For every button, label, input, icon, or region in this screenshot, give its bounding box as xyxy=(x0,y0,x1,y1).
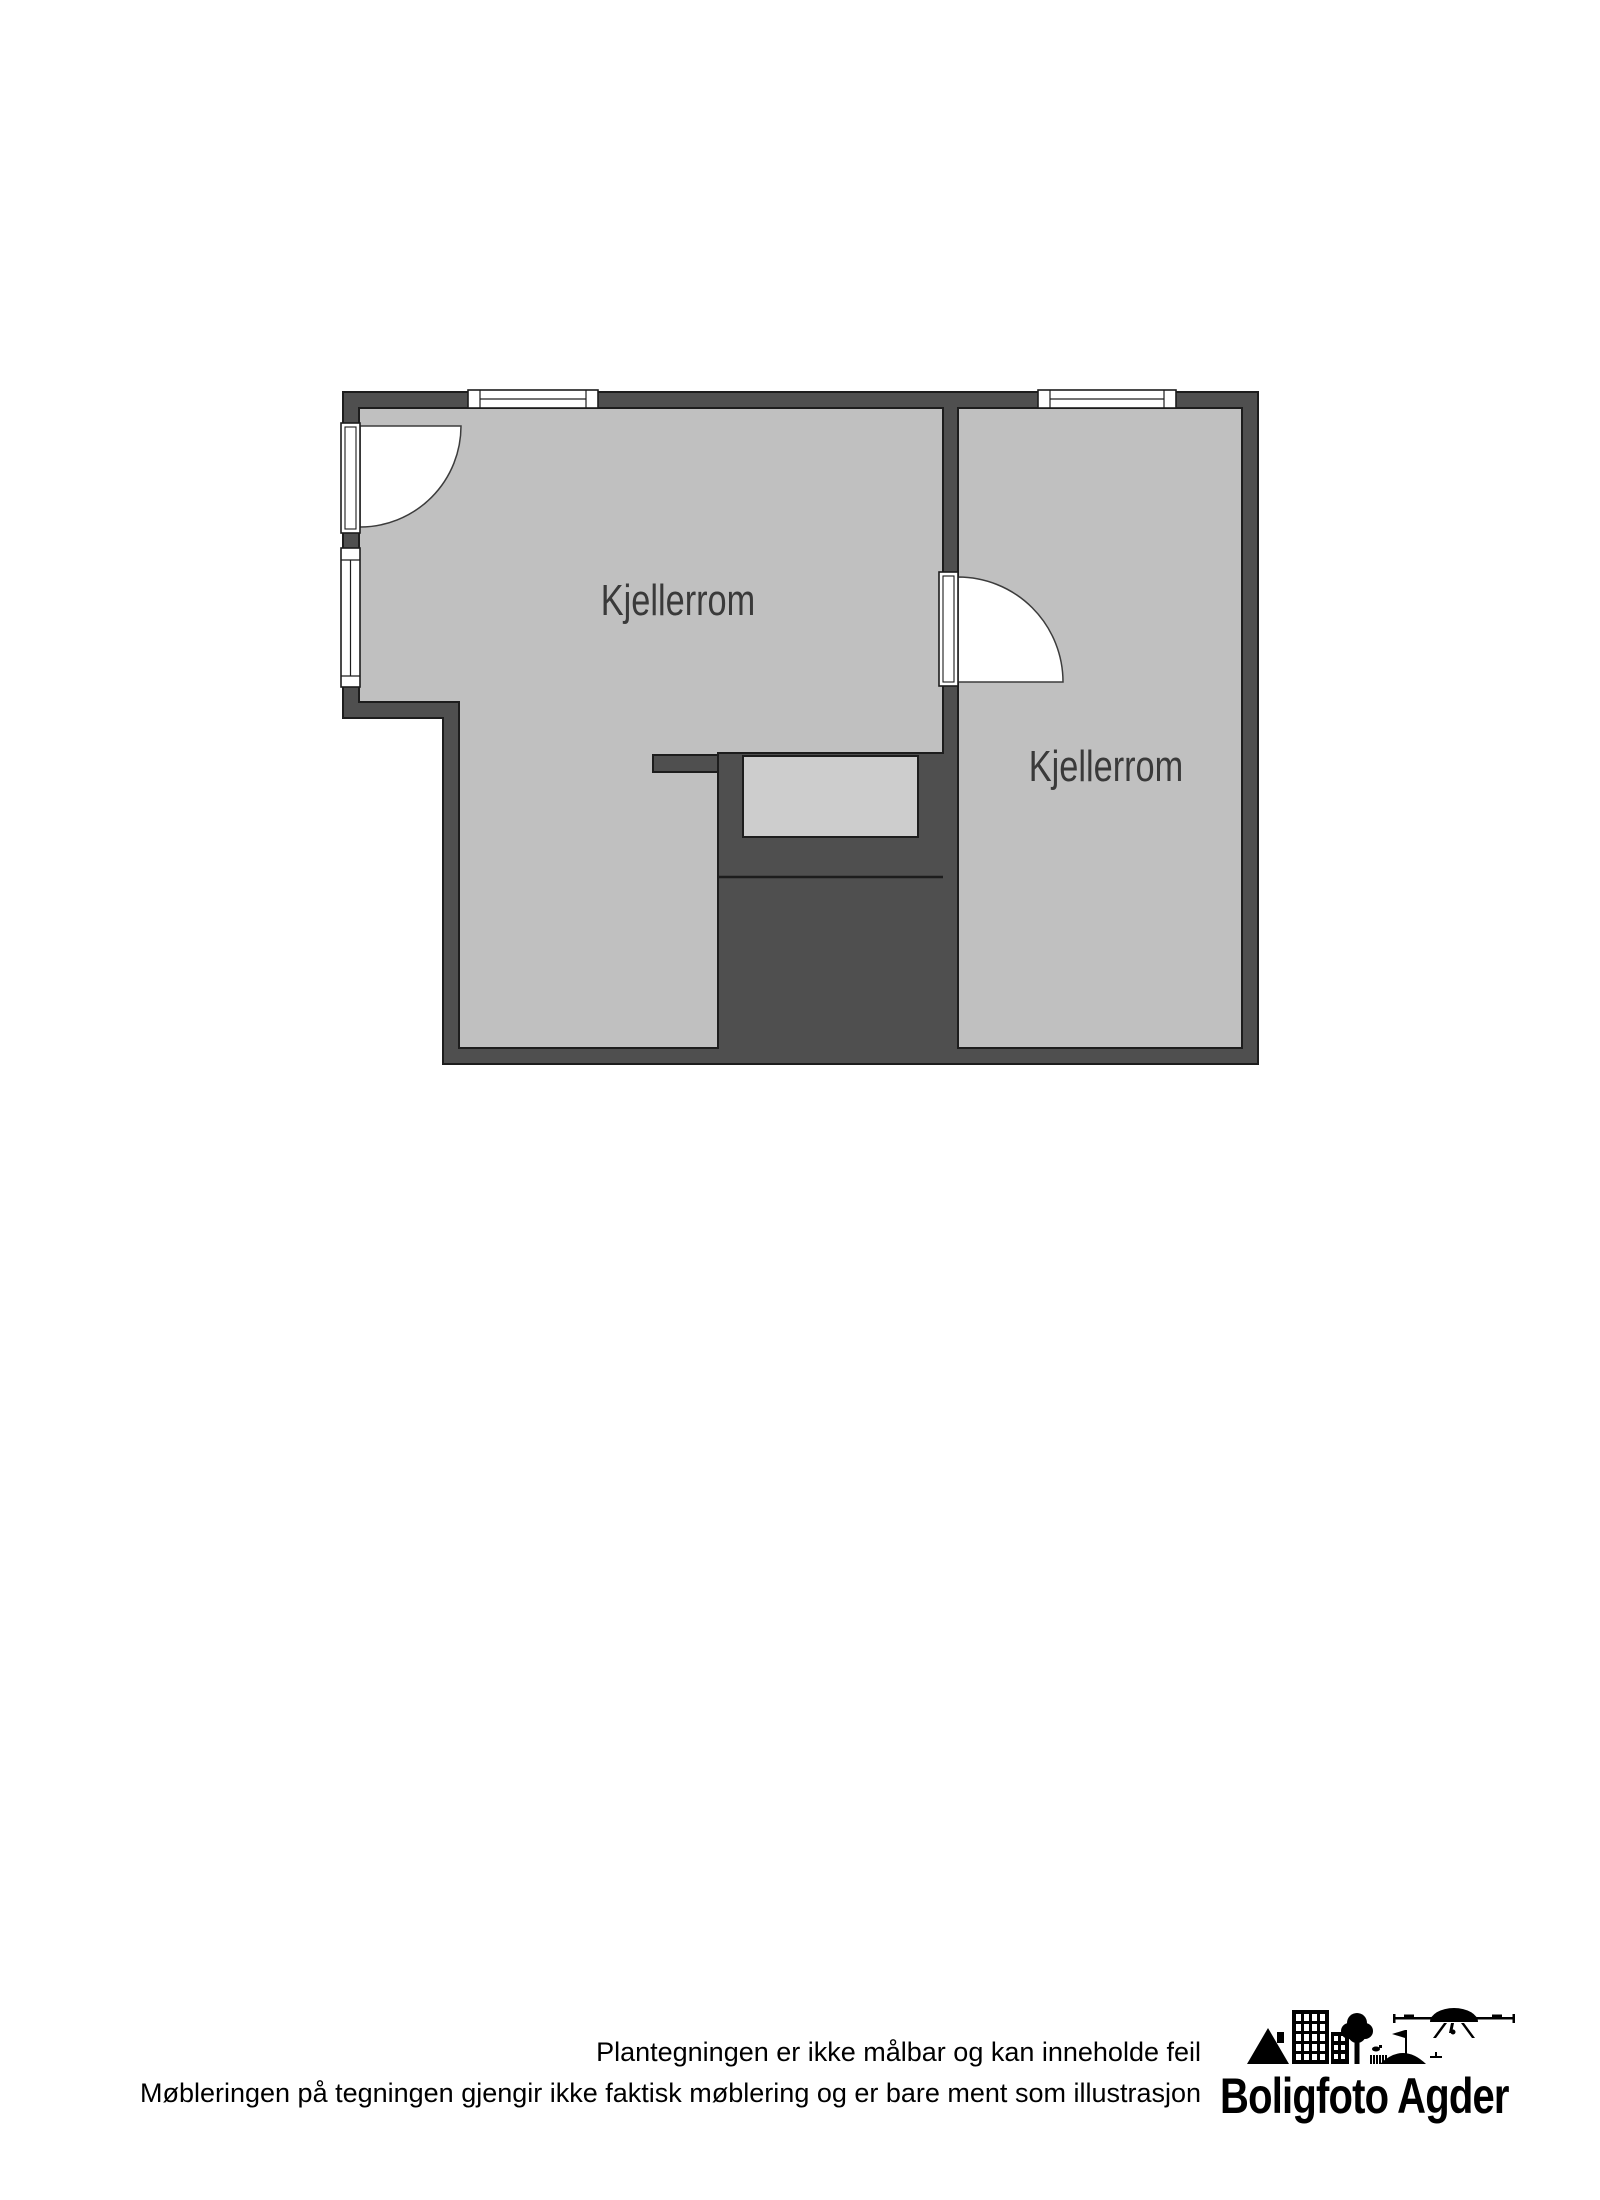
bird-icon xyxy=(1372,2047,1380,2052)
room-floor-right xyxy=(958,408,1242,1048)
stair-spur-wall xyxy=(653,755,718,772)
door-middle-wall xyxy=(939,572,958,686)
stair-landing xyxy=(743,756,918,837)
disclaimer-line-2: Møbleringen på tegningen gjengir ikke fa… xyxy=(140,2073,1201,2114)
drone-icon xyxy=(1393,2008,1515,2038)
logo-brand-text: Boligfoto Agder xyxy=(1220,2067,1509,2125)
window-top-left-room xyxy=(468,390,598,408)
room-label-right: Kjellerrom xyxy=(1029,742,1183,792)
floor-plan-page: Kjellerrom Kjellerrom Plantegningen er i… xyxy=(0,0,1600,2200)
mini-drone-icon xyxy=(1430,2052,1442,2058)
floor-plan-drawing xyxy=(0,0,1600,2200)
boligfoto-logo: Boligfoto Agder xyxy=(1218,2004,1530,2116)
window-top-right-room xyxy=(1038,390,1176,408)
door-left xyxy=(341,423,360,533)
room-label-left: Kjellerrom xyxy=(601,576,755,626)
window-left-wall xyxy=(341,548,360,687)
disclaimer: Plantegningen er ikke målbar og kan inne… xyxy=(140,2032,1201,2114)
disclaimer-line-1: Plantegningen er ikke målbar og kan inne… xyxy=(140,2032,1201,2073)
logo-skyline-icon xyxy=(1246,2006,1518,2068)
